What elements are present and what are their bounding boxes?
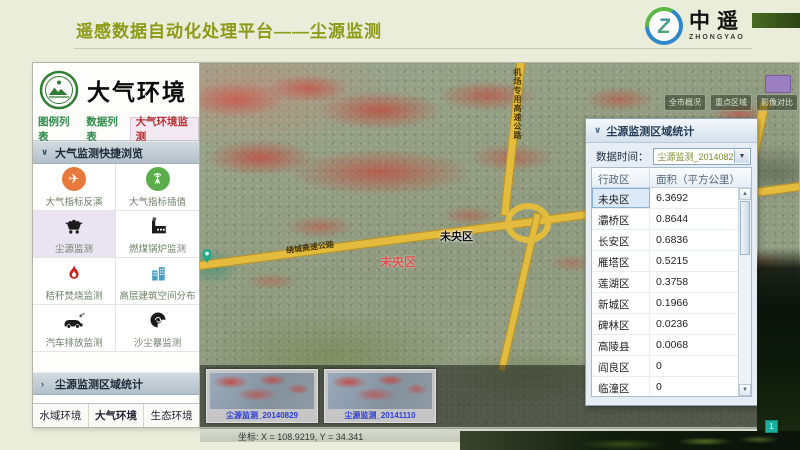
coordinate-text: 坐标: X = 108.9219, Y = 34.341 [238,432,363,442]
cell-district: 莲湖区 [592,272,650,292]
cell-district: 临潼区 [592,377,650,396]
data-time-label: 数据时间： [596,149,649,164]
thumbnail-caption: 尘源监测_20141110 [325,410,435,422]
tool-index-interpolation[interactable]: 大气指标插值 [116,164,199,211]
column-header-district: 行政区 [592,168,650,187]
scroll-down-icon[interactable]: ▼ [739,384,751,396]
table-row[interactable]: 长安区0.6836 [592,230,738,251]
tool-grid: ✈ 大气指标反演 大气指标插值 尘源监测 燃煤锅炉监测 [33,164,199,352]
cell-area: 0 [650,377,738,396]
tool-dust-source-monitor[interactable]: 尘源监测 [33,211,116,258]
signal-tower-icon [146,167,170,191]
table-row[interactable]: 未央区6.3692 [592,188,738,209]
data-time-value: 尘源监测_20140829 [658,150,739,163]
district-label-red: 未央区 [380,253,416,270]
tab-atmosphere-monitor[interactable]: 大气环境监测 [130,117,199,140]
city-overview-button[interactable]: 全市概况 [664,94,706,111]
cell-district: 阎良区 [592,356,650,376]
tool-highrise-distribution[interactable]: 高层建筑空间分布 [116,258,199,305]
panel-title: 尘源监测区域统计 [606,123,694,139]
dust-stats-section-header[interactable]: › 尘源监测区域统计 [33,372,199,395]
sidebar-gap [33,395,199,403]
dust-storm-icon [148,308,168,332]
cell-area: 0.8644 [650,209,738,229]
cell-area: 0.0068 [650,335,738,355]
district-label: 未央区 [440,228,473,244]
cell-area: 0.1966 [650,293,738,313]
environment-emblem-icon [39,70,79,110]
sidebar: 大气环境 图例列表 数据列表 大气环境监测 ∨ 大气监测快捷浏览 ✈ 大气指标反… [33,63,200,427]
logo-subname: ZHONGYAO [689,34,745,41]
factory-icon [147,214,169,238]
company-logo: Z 中遥 ZHONGYAO [645,7,745,45]
tab-water-environment[interactable]: 水域环境 [33,404,89,427]
flame-icon [64,261,84,285]
table-row[interactable]: 灞桥区0.8644 [592,209,738,230]
zoom-level-badge[interactable]: 1 [765,420,778,433]
cell-area: 0 [650,356,738,376]
cell-district: 未央区 [592,188,650,208]
tool-aerosol-retrieval[interactable]: ✈ 大气指标反演 [33,164,116,211]
collapse-icon[interactable]: ∨ [594,125,601,136]
cell-district: 高陵县 [592,335,650,355]
cell-area: 0.3758 [650,272,738,292]
tool-label: 燃煤锅炉监测 [129,241,186,255]
scene-thumbnail[interactable]: 尘源监测_20140829 [206,369,318,423]
tab-eco-environment[interactable]: 生态环境 [144,404,199,427]
tab-atmosphere-environment[interactable]: 大气环境 [89,404,145,427]
table-row[interactable]: 碑林区0.0236 [592,314,738,335]
satellite-map[interactable]: 未央区 未央区 绕城高速公路 机场专用高速公路 全市概况 重点区域 影像对比 尘… [200,63,799,427]
header-green-bar [752,13,800,28]
scroll-up-icon[interactable]: ▲ [739,188,751,200]
scrollbar-thumb[interactable] [740,201,750,255]
chevron-down-icon[interactable]: ▼ [734,150,749,163]
table-row[interactable]: 新城区0.1966 [592,293,738,314]
header-divider [74,48,752,49]
column-header-area: 面积（平方公里） [650,168,751,187]
tool-label: 汽车排放监测 [45,335,102,349]
cell-district: 新城区 [592,293,650,313]
table-row[interactable]: 莲湖区0.3758 [592,272,738,293]
table-body: 未央区6.3692 灞桥区0.8644 长安区0.6836 雁塔区0.5215 … [592,188,738,396]
image-compare-button[interactable]: 影像对比 [756,94,798,111]
airport-road-label: 机场专用高速公路 [512,68,523,140]
zhongyao-logo-icon: Z [645,7,683,45]
tab-legend-list[interactable]: 图例列表 [33,117,81,140]
cell-district: 灞桥区 [592,209,650,229]
cell-district: 碑林区 [592,314,650,334]
environment-module-tabs: 水域环境 大气环境 生态环境 [33,403,199,427]
quick-browse-title: 大气监测快捷浏览 [55,145,143,161]
cell-area: 0.6836 [650,230,738,250]
panel-header[interactable]: ∨ 尘源监测区域统计 [586,119,757,143]
tool-label: 大气指标插值 [129,194,186,208]
thumbnail-image [328,373,432,409]
scene-thumbnail[interactable]: 尘源监测_20141110 [324,369,436,423]
expand-icon[interactable]: › [41,379,49,389]
map-pin-icon[interactable] [202,249,212,263]
table-scrollbar[interactable]: ▲ ▼ [738,188,751,396]
tool-label: 高层建筑空间分布 [119,288,195,302]
thumbnail-image [210,373,314,409]
table-row[interactable]: 高陵县0.0068 [592,335,738,356]
sidebar-header: 大气环境 [33,63,199,117]
collapse-icon[interactable]: ∨ [41,147,49,158]
table-header-row: 行政区 面积（平方公里） [592,168,751,188]
thumbnail-caption: 尘源监测_20140829 [207,410,317,422]
tool-label: 尘源监测 [55,241,93,255]
district-area-table: 行政区 面积（平方公里） 未央区6.3692 灞桥区0.8644 长安区0.68… [591,167,752,397]
airplane-icon: ✈ [62,167,86,191]
tool-label: 大气指标反演 [45,194,102,208]
app-title: 大气环境 [87,73,187,107]
data-time-row: 数据时间： 尘源监测_20140829 ▼ [586,143,757,169]
cell-district: 长安区 [592,230,650,250]
dust-stats-section-title: 尘源监测区域统计 [55,376,143,392]
right-decorative-strip [757,248,800,450]
tool-sandstorm-monitor[interactable]: 沙尘暴监测 [116,305,199,352]
tool-label: 秸秆焚烧监测 [45,288,102,302]
tool-coal-boiler-monitor[interactable]: 燃煤锅炉监测 [116,211,199,258]
tool-straw-burning-monitor[interactable]: 秸秆焚烧监测 [33,258,116,305]
building-block [765,75,791,93]
mine-cart-icon [63,214,85,238]
tab-data-list[interactable]: 数据列表 [81,117,129,140]
highway-interchange [505,203,551,243]
sidebar-tabs: 图例列表 数据列表 大气环境监测 [33,117,199,141]
dust-stats-panel: ∨ 尘源监测区域统计 数据时间： 尘源监测_20140829 ▼ 行政区 面积（… [585,118,758,406]
map-toolbar: 全市概况 重点区域 影像对比 [664,94,798,111]
sidebar-spacer [33,352,199,372]
data-time-select[interactable]: 尘源监测_20140829 ▼ [653,148,752,165]
cell-district: 雁塔区 [592,251,650,271]
page-title: 遥感数据自动化处理平台——尘源监测 [76,17,382,42]
table-row[interactable]: 临潼区0 [592,377,738,396]
cell-area: 6.3692 [650,188,738,208]
cell-area: 0.5215 [650,251,738,271]
quick-browse-section-header[interactable]: ∨ 大气监测快捷浏览 [33,141,199,164]
main-window: 大气环境 图例列表 数据列表 大气环境监测 ∨ 大气监测快捷浏览 ✈ 大气指标反… [32,62,800,428]
table-row[interactable]: 雁塔区0.5215 [592,251,738,272]
car-icon [62,308,86,332]
table-row[interactable]: 阎良区0 [592,356,738,377]
tool-label: 沙尘暴监测 [134,335,182,349]
logo-name: 中遥 [689,11,745,33]
tool-vehicle-emission-monitor[interactable]: 汽车排放监测 [33,305,116,352]
bottom-decorative-strip [460,431,800,450]
key-area-button[interactable]: 重点区域 [710,94,752,111]
buildings-icon [148,261,168,285]
logo-mark: Z [658,16,671,37]
cell-area: 0.0236 [650,314,738,334]
